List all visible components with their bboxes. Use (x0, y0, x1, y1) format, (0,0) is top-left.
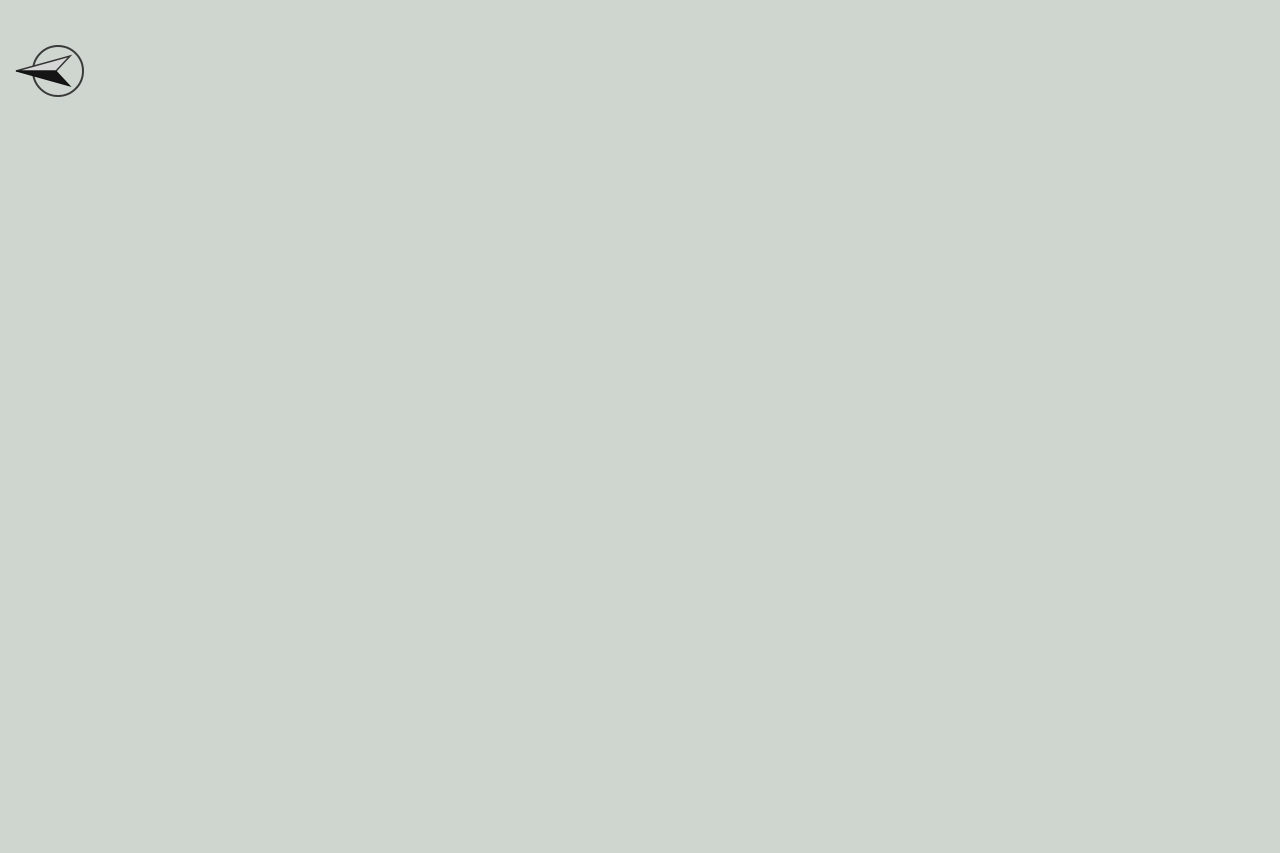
site-plan-canvas (0, 0, 1280, 853)
compass-arrow-top (16, 56, 70, 71)
compass-arrow-bottom (16, 71, 70, 86)
master-plan-map (0, 0, 1280, 853)
compass (6, 38, 136, 108)
